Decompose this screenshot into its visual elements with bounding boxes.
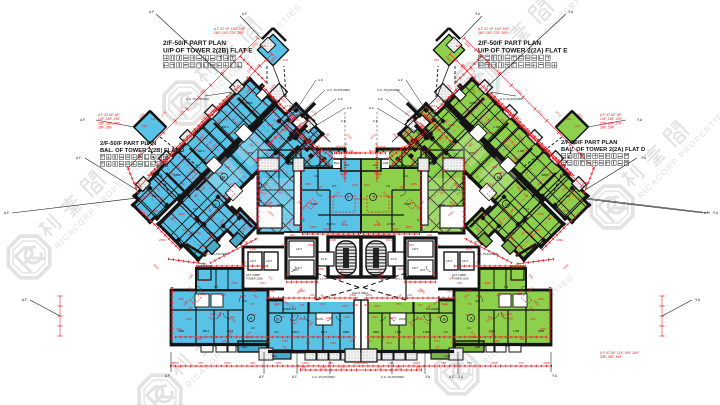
svg-text:U/P OF TOWER 2(2A) FLAT E: U/P OF TOWER 2(2A) FLAT E [478,48,568,55]
svg-text:BATH: BATH [316,317,323,321]
svg-text:150: 150 [367,339,372,343]
svg-text:A.F.: A.F. [712,211,718,215]
svg-text:BR.1: BR.1 [512,329,519,333]
svg-text:150: 150 [427,233,432,237]
svg-text:2350: 2350 [159,238,166,242]
svg-text:475: 475 [487,315,492,319]
svg-text:150: 150 [142,124,147,128]
svg-text:1500: 1500 [397,267,404,271]
svg-text:BATH: BATH [399,317,406,321]
svg-text:2350: 2350 [231,281,238,285]
svg-text:3050: 3050 [496,293,502,297]
svg-text:3050: 3050 [494,339,500,343]
svg-text:100: 100 [340,366,345,370]
svg-text:1745: 1745 [347,149,354,153]
svg-text:U/P OF TOWER 2(2B) FLAT E: U/P OF TOWER 2(2B) FLAT E [163,48,253,55]
svg-text:475: 475 [410,201,415,205]
svg-text:A.C. PLATFORM: A.C. PLATFORM [186,97,209,101]
svg-text:1775: 1775 [395,277,402,281]
svg-text:D: D [222,175,225,180]
svg-text:E: E [432,159,435,164]
svg-text:A.F.: A.F. [165,374,171,378]
svg-text:1500: 1500 [302,361,309,365]
svg-text:1775: 1775 [320,277,327,281]
svg-text:100: 100 [377,366,382,370]
svg-text:1745: 1745 [368,149,375,153]
svg-text:475: 475 [198,361,203,365]
svg-text:475: 475 [307,201,312,205]
svg-text:1775: 1775 [282,339,288,343]
svg-text:DIN: DIN [475,299,480,303]
svg-text:2350: 2350 [484,281,491,285]
svg-text:BR.2: BR.2 [422,330,429,334]
svg-text:150: 150 [270,289,275,293]
svg-text:475: 475 [456,44,461,48]
svg-text:A.F.: A.F. [242,12,248,16]
svg-text:725: 725 [411,157,416,161]
svg-text:3050: 3050 [200,292,206,296]
svg-text:A.F.: A.F. [347,106,352,110]
svg-text:1350: 1350 [250,247,257,251]
svg-text:250: 250 [320,159,325,163]
svg-text:1745: 1745 [285,104,292,108]
svg-text:100: 100 [391,227,396,231]
svg-text:250: 250 [328,361,333,365]
svg-text:LIFT: LIFT [462,259,468,263]
svg-text:2100: 2100 [330,238,337,242]
svg-text:3050: 3050 [491,361,498,365]
svg-text:2250: 2250 [342,304,348,308]
svg-text:475: 475 [519,361,524,365]
svg-text:A.C. PLATFORM: A.C. PLATFORM [377,88,400,92]
svg-text:150: 150 [250,361,255,365]
svg-text:KIT: KIT [503,285,508,289]
svg-text:E: E [287,159,290,164]
svg-text:2350: 2350 [305,182,312,186]
svg-text:1400: 1400 [275,302,281,306]
svg-text:2100: 2100 [330,341,336,345]
svg-text:250: 250 [276,361,281,365]
svg-text:BAL.: BAL. [334,161,340,165]
svg-text:100: 100 [300,303,305,307]
svg-text:1745: 1745 [340,172,347,176]
svg-text:150: 150 [183,228,188,232]
svg-text:2350: 2350 [228,131,235,135]
svg-text:475: 475 [230,315,235,319]
svg-text:BR.1: BR.1 [272,127,279,131]
svg-text:2350: 2350 [310,225,317,229]
svg-text:475: 475 [467,302,472,306]
svg-text:BR.2: BR.2 [293,330,300,334]
svg-text:2250: 2250 [176,327,182,331]
svg-text:2/F-50/F PART PLAN: 2/F-50/F PART PLAN [478,40,541,47]
svg-text:3050: 3050 [506,312,512,316]
svg-text:475: 475 [355,197,360,201]
svg-text:26/F, 21/F, 27/F, 28/F: 26/F, 21/F, 27/F, 28/F [214,31,244,35]
svg-text:A.F.: A.F. [292,375,298,379]
svg-text:2250: 2250 [381,233,388,237]
svg-text:A.C. PLATFORM: A.C. PLATFORM [327,88,350,92]
svg-text:150: 150 [290,233,295,237]
svg-text:2250: 2250 [476,294,482,298]
svg-text:2350: 2350 [405,225,412,229]
svg-text:3050: 3050 [379,145,386,149]
svg-text:250: 250 [397,159,402,163]
svg-text:2350: 2350 [282,243,289,247]
svg-text:A.F.: A.F. [378,97,383,101]
svg-text:3050: 3050 [336,145,343,149]
svg-text:2350: 2350 [487,131,494,135]
svg-text:475: 475 [418,217,423,221]
svg-text:A.F.: A.F. [694,298,700,302]
svg-text:2100: 2100 [344,315,350,319]
svg-text:2100: 2100 [300,366,307,370]
svg-text:LIFT: LIFT [412,247,418,251]
svg-text:U/V: U/V [443,330,448,334]
svg-text:A.F.: A.F. [398,78,403,82]
svg-text:A.C. PLATFORM: A.C. PLATFORM [477,252,499,256]
svg-text:2250: 2250 [515,244,522,248]
svg-text:A.C. PLATFORM: A.C. PLATFORM [312,375,335,379]
svg-text:LIFT: LIFT [266,259,272,263]
svg-text:3050: 3050 [516,292,522,296]
svg-text:MBR: MBR [373,330,379,334]
svg-text:BAL.: BAL. [382,161,388,165]
svg-text:2250: 2250 [373,223,380,227]
svg-text:725: 725 [306,157,311,161]
svg-text:A.F.: A.F. [551,374,557,378]
svg-text:26/F, 21/F, 27/F, 28/F: 26/F, 21/F, 27/F, 28/F [478,31,508,35]
svg-text:BAL.: BAL. [242,345,248,349]
svg-text:3050: 3050 [222,339,228,343]
svg-text:1350: 1350 [513,278,520,282]
svg-text:100: 100 [434,58,439,62]
svg-text:A.F.: A.F. [4,211,10,215]
svg-text:1745: 1745 [396,302,402,306]
svg-text:475: 475 [261,44,266,48]
svg-text:250: 250 [441,361,446,365]
svg-text:F2.R: F2.R [321,257,327,261]
svg-text:100: 100 [407,293,412,297]
svg-text:3050: 3050 [172,361,179,365]
svg-text:250: 250 [219,171,224,175]
svg-text:A.C. PLATFORM: A.C. PLATFORM [381,375,404,379]
svg-text:A.F.: A.F. [149,10,155,14]
svg-text:KIT: KIT [214,285,219,289]
svg-text:A.F.: A.F. [318,78,323,82]
svg-text:100: 100 [252,313,257,317]
svg-text:1500: 1500 [563,209,570,213]
svg-text:2/F-50/F PART PLAN: 2/F-50/F PART PLAN [163,40,226,47]
svg-text:3050: 3050 [210,312,216,316]
svg-text:150: 150 [534,228,539,232]
svg-text:2350: 2350 [433,243,440,247]
svg-text:3050: 3050 [220,293,226,297]
svg-text:3000: 3000 [363,303,370,307]
svg-text:LIFT: LIFT [412,266,418,270]
svg-text:2350: 2350 [556,238,563,242]
svg-text:475: 475 [306,341,311,345]
svg-text:3050: 3050 [250,289,257,293]
svg-text:A.F.: A.F. [640,156,646,160]
svg-text:3000: 3000 [448,123,455,127]
svg-text:A.F.: A.F. [424,375,430,379]
svg-text:A.F.: A.F. [449,375,455,379]
svg-text:A.F.: A.F. [76,156,82,160]
svg-text:MBR: MBR [343,330,349,334]
svg-text:150: 150 [447,289,452,293]
svg-text:150: 150 [471,335,476,339]
svg-text:LIV: LIV [193,207,198,211]
svg-text:B: B [276,317,279,322]
svg-text:2250: 2250 [342,223,349,227]
svg-text:475: 475 [299,217,304,221]
svg-text:LIV: LIV [332,184,336,188]
svg-text:2100: 2100 [386,341,392,345]
svg-text:150: 150 [372,234,377,238]
svg-text:1500: 1500 [363,183,370,187]
svg-text:LIFT: LIFT [420,268,426,272]
svg-text:150: 150 [350,339,355,343]
svg-text:1500: 1500 [530,317,536,321]
svg-text:3050: 3050 [543,361,550,365]
svg-text:LIV: LIV [251,326,255,330]
svg-text:32/F, 38/F, 46/F: 32/F, 38/F, 46/F [600,355,622,359]
svg-text:LIFT: LIFT [446,259,452,263]
svg-text:2100: 2100 [372,315,378,319]
svg-text:A.F.: A.F. [259,375,265,379]
svg-text:MBR: MBR [277,203,285,207]
svg-text:100: 100 [465,313,470,317]
svg-text:BAL.: BAL. [444,354,450,358]
svg-text:LIV: LIV [403,174,408,178]
svg-text:BATH: BATH [327,222,335,226]
svg-text:BR.1: BR.1 [394,330,401,334]
svg-text:F2.R: F2.R [391,257,397,261]
svg-text:2350: 2350 [178,297,184,301]
svg-text:100: 100 [310,293,315,297]
svg-text:BR.1: BR.1 [443,127,450,131]
svg-text:1500: 1500 [152,209,159,213]
svg-text:A.F.: A.F. [704,211,710,215]
svg-text:BR.1: BR.1 [203,329,210,333]
svg-text:475: 475 [250,302,255,306]
svg-text:2100: 2100 [320,366,327,370]
svg-text:3050: 3050 [330,293,337,297]
svg-text:1500: 1500 [186,317,192,321]
svg-text:3050: 3050 [385,293,392,297]
svg-text:1500: 1500 [318,267,325,271]
svg-text:3050: 3050 [465,289,472,293]
svg-text:A.F.: A.F. [567,10,573,14]
svg-text:B: B [443,317,446,322]
svg-text:475: 475 [362,197,367,201]
svg-text:BAL.: BAL. [272,354,278,358]
svg-text:150: 150 [225,165,230,169]
svg-text:1500: 1500 [308,243,315,247]
svg-text:TOWER 2(2B): TOWER 2(2B) [246,277,263,281]
svg-text:1350: 1350 [274,168,281,172]
svg-text:BAL. OF TOWER 2(2A) FLAT D: BAL. OF TOWER 2(2A) FLAT D [561,147,645,153]
svg-text:150: 150 [336,277,341,281]
svg-text:BR.1: BR.1 [198,149,205,153]
svg-text:MBR: MBR [311,202,319,206]
svg-text:BR.1: BR.1 [517,149,524,153]
svg-text:BR.1: BR.1 [321,330,328,334]
svg-text:150: 150 [345,234,350,238]
svg-text:1745: 1745 [320,302,326,306]
svg-text:100: 100 [317,185,322,189]
svg-text:2100: 2100 [395,366,402,370]
svg-text:LIFT: LIFT [250,259,256,263]
svg-text:150: 150 [575,124,580,128]
svg-text:A.F.: A.F. [338,97,343,101]
svg-text:LIV: LIV [314,174,319,178]
svg-text:100: 100 [283,58,288,62]
svg-text:150: 150 [381,277,386,281]
svg-text:3000: 3000 [352,303,359,307]
svg-text:250: 250 [389,361,394,365]
svg-text:3050: 3050 [387,195,394,199]
svg-text:A.F.: A.F. [80,118,86,122]
svg-text:BR.2: BR.2 [222,125,229,129]
svg-text:MBR: MBR [438,203,446,207]
svg-text:LIFT LOBBY: LIFT LOBBY [452,273,467,277]
svg-text:2350: 2350 [354,361,361,365]
svg-text:2350: 2350 [538,297,544,301]
svg-text:2250: 2250 [334,233,341,237]
svg-text:1775: 1775 [434,339,440,343]
svg-text:A.C. PLATFORM: A.C. PLATFORM [206,252,228,256]
svg-text:2250: 2250 [390,316,396,320]
svg-text:LIFT: LIFT [296,247,302,251]
svg-text:A.F.: A.F. [457,375,463,379]
svg-text:LIV: LIV [386,184,390,188]
svg-text:250: 250 [498,171,503,175]
svg-text:2100: 2100 [385,238,392,242]
svg-text:2/F-50/F PART PLAN: 2/F-50/F PART PLAN [100,141,156,147]
svg-text:LIV: LIV [467,326,471,330]
svg-text:LIGHT WELL: LIGHT WELL [352,291,369,295]
svg-text:3050: 3050 [416,317,422,321]
svg-text:BR.2: BR.2 [493,125,500,129]
svg-text:D: D [497,175,500,180]
svg-text:2350: 2350 [361,361,368,365]
svg-text:2/F-50/F PART PLAN: 2/F-50/F PART PLAN [561,140,617,146]
svg-text:LIV: LIV [524,207,529,211]
svg-text:2250: 2250 [240,294,246,298]
svg-text:2100: 2100 [415,366,422,370]
svg-text:BAL.: BAL. [474,345,480,349]
svg-text:150: 150 [246,335,251,339]
svg-text:3050: 3050 [300,317,306,321]
svg-text:28/F, 29/F: 28/F, 29/F [600,126,614,130]
svg-text:A.F.: A.F. [636,118,642,122]
svg-text:TOWER 2(2A): TOWER 2(2A) [452,277,469,281]
svg-text:1400: 1400 [441,302,447,306]
svg-text:A.F.: A.F. [369,106,374,110]
svg-text:1400: 1400 [520,337,526,341]
svg-text:A.F.: A.F. [474,12,480,16]
svg-text:100: 100 [566,117,571,121]
svg-text:250: 250 [417,289,422,293]
svg-text:150: 150 [260,281,265,285]
svg-text:1500: 1500 [413,361,420,365]
svg-text:1500: 1500 [352,183,359,187]
svg-text:U/V: U/V [274,330,279,334]
svg-text:BAL. OF TOWER 2(2B) FLAT D: BAL. OF TOWER 2(2B) FLAT D [100,148,184,154]
svg-text:475: 475 [411,341,416,345]
svg-text:A.F.: A.F. [22,298,28,302]
svg-text:1350: 1350 [441,168,448,172]
svg-text:150: 150 [457,281,462,285]
svg-text:100: 100 [400,185,405,189]
svg-text:2350: 2350 [410,182,417,186]
svg-text:A.F.: A.F. [341,119,346,123]
svg-text:150: 150 [492,165,497,169]
svg-text:1350: 1350 [465,247,472,251]
svg-text:2350: 2350 [537,212,544,216]
svg-text:28/F, 29/F: 28/F, 29/F [98,126,112,130]
svg-text:MBR: MBR [404,202,412,206]
svg-text:A.C. PLATFORM: A.C. PLATFORM [500,97,523,101]
svg-text:3050: 3050 [224,361,231,365]
svg-text:1745: 1745 [375,172,382,176]
svg-text:250: 250 [280,315,285,319]
svg-text:BATH: BATH [387,222,395,226]
svg-text:3050: 3050 [328,195,335,199]
svg-text:100: 100 [417,303,422,307]
svg-text:LIFT: LIFT [293,268,299,272]
svg-text:2250: 2250 [540,327,546,331]
svg-text:1350: 1350 [202,278,209,282]
svg-text:2250: 2250 [200,244,207,248]
svg-text:1400: 1400 [196,337,202,341]
svg-text:250: 250 [300,289,305,293]
svg-text:3000: 3000 [267,123,274,127]
svg-text:100: 100 [326,227,331,231]
svg-text:150: 150 [467,361,472,365]
svg-text:250: 250 [437,315,442,319]
svg-text:100: 100 [151,117,156,121]
svg-text:2250: 2250 [374,304,380,308]
svg-text:LIFT LOBBY: LIFT LOBBY [246,273,261,277]
svg-text:2250: 2250 [326,316,332,320]
svg-text:A.F.: A.F. [373,119,378,123]
svg-text:DIN: DIN [242,299,247,303]
svg-text:2350: 2350 [178,212,185,216]
svg-text:1745: 1745 [430,104,437,108]
